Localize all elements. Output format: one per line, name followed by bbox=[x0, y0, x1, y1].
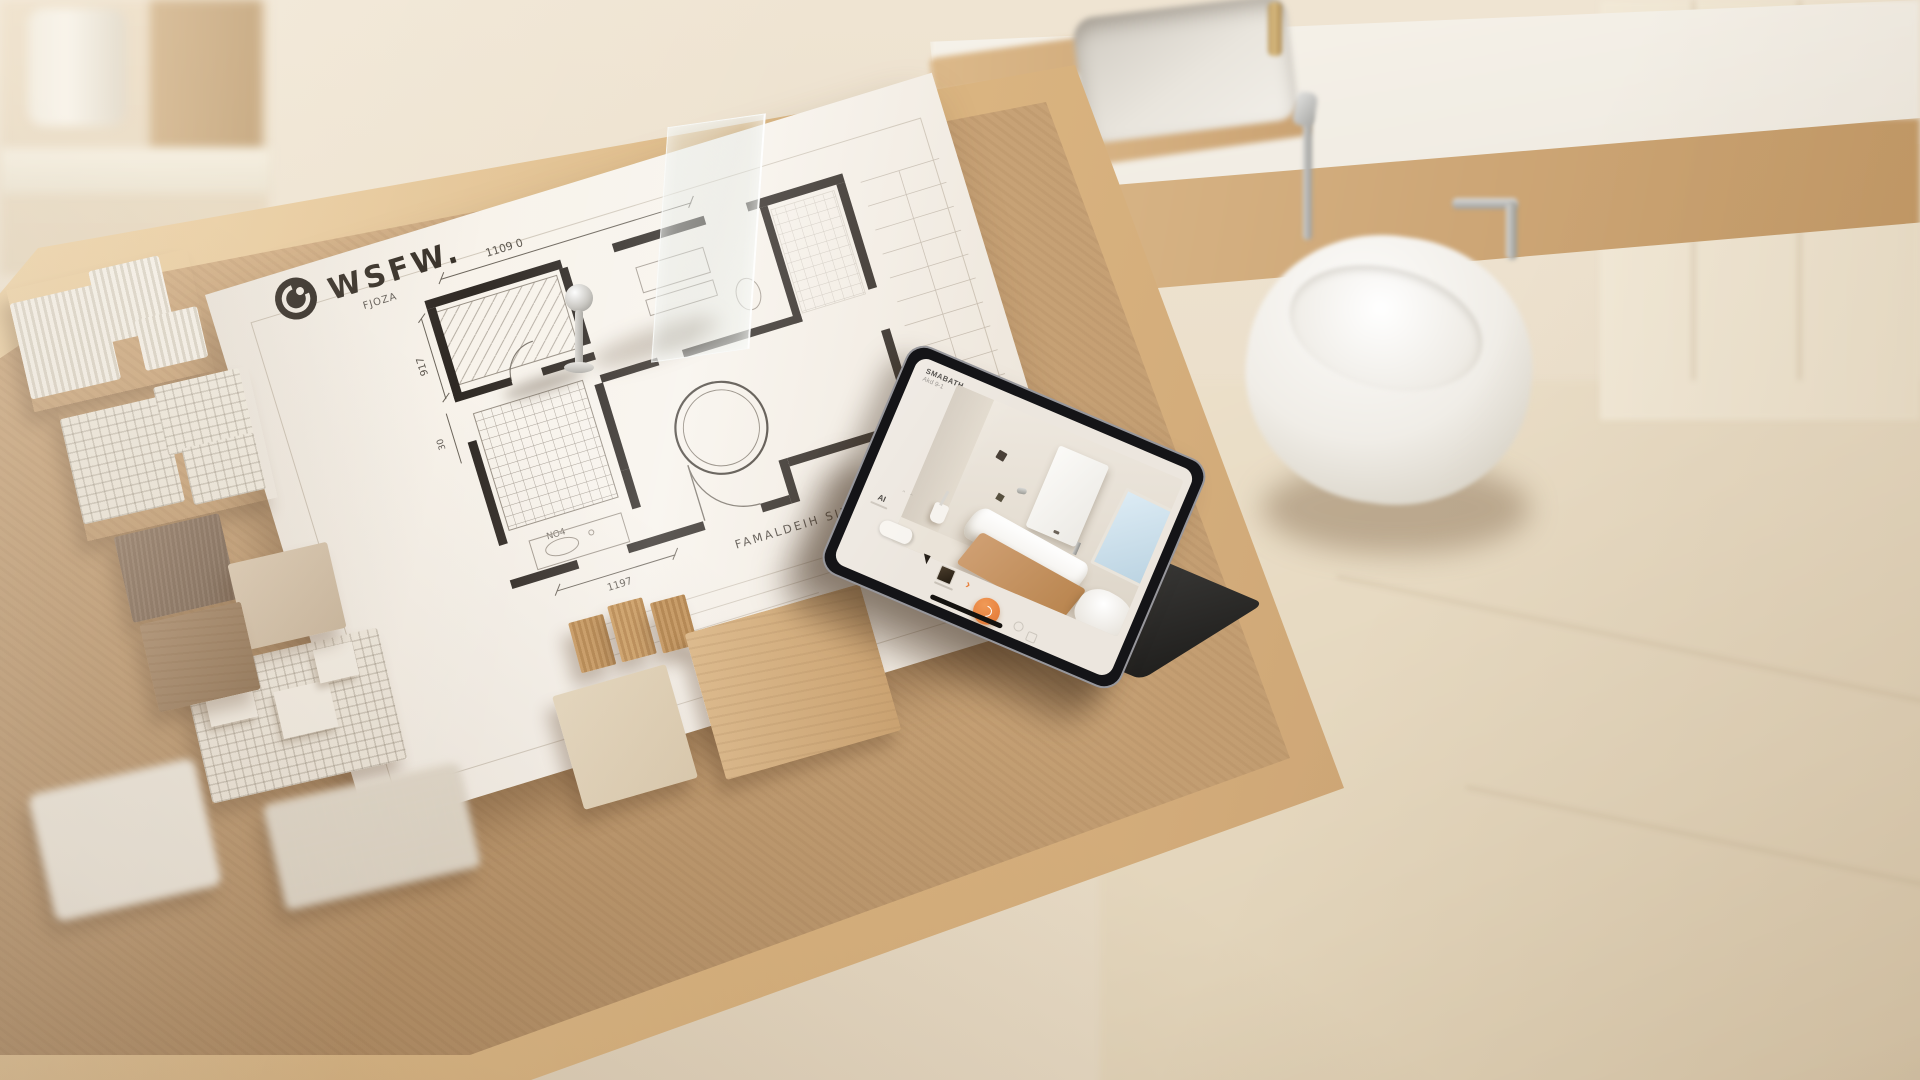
app-subtitle: Akd 9-1 bbox=[921, 376, 961, 398]
render-brush-cup bbox=[928, 501, 950, 525]
thumb-label-bar bbox=[934, 581, 953, 591]
grid-tool-icon[interactable] bbox=[1025, 631, 1038, 644]
ai-sparkle-icon: AI bbox=[870, 490, 894, 507]
material-thumb-button[interactable] bbox=[934, 565, 964, 593]
figure-head bbox=[565, 284, 593, 312]
ai-button-label-bar bbox=[870, 501, 887, 510]
render-window bbox=[1090, 487, 1179, 588]
render-toilet bbox=[1067, 580, 1140, 637]
magic-render-button[interactable] bbox=[969, 594, 1004, 629]
dim-left-upper-label: 917 bbox=[415, 356, 431, 377]
render-faucet bbox=[1072, 542, 1081, 556]
render-sink-basin bbox=[959, 505, 1093, 596]
render-wall-switch bbox=[995, 493, 1005, 503]
wood-block bbox=[607, 597, 657, 662]
ai-assist-button[interactable]: AI bbox=[868, 490, 893, 511]
gold-faucet bbox=[1268, 2, 1282, 56]
figure-stem bbox=[575, 310, 583, 366]
wall-faucet-spout bbox=[1506, 202, 1517, 260]
render-towel-hook bbox=[1016, 487, 1027, 495]
render-vanity-wood bbox=[956, 532, 1087, 622]
material-thumbnail bbox=[935, 565, 956, 586]
secondary-tool-icon[interactable] bbox=[1012, 620, 1025, 633]
chevron-right-icon[interactable]: › bbox=[963, 576, 973, 592]
cursor-arrow-icon[interactable] bbox=[924, 552, 932, 564]
shelf-wood-column bbox=[150, 0, 262, 152]
render-niche-wall bbox=[891, 384, 994, 556]
dim-bottom-label: 1197 bbox=[606, 576, 634, 594]
spray-hose bbox=[1303, 112, 1312, 240]
shelf-ledge bbox=[0, 148, 272, 194]
render-brush-handle bbox=[939, 491, 949, 506]
pill-button[interactable] bbox=[877, 518, 916, 547]
magic-brush-icon bbox=[979, 604, 994, 619]
plan-note-upper: FJOZA bbox=[362, 291, 399, 312]
shower-column-figure bbox=[556, 284, 602, 396]
render-mirror-cabinet bbox=[1025, 445, 1109, 547]
render-cabinet-handle bbox=[1053, 530, 1060, 535]
render-wall-control bbox=[995, 450, 1007, 462]
plan-note-mid: NO4 bbox=[545, 527, 567, 542]
blueprint-logo-icon bbox=[270, 272, 322, 324]
shelf-canister bbox=[28, 8, 126, 126]
app-header: SMABATH Akd 9-1 bbox=[921, 366, 965, 397]
bathroom-design-scene: WSFW. 1109 0 917 30 1197 FJOZA NO4 FAMAL… bbox=[0, 0, 1920, 1080]
caret-marks: ⌃ ⌃ bbox=[899, 489, 914, 501]
dim-left-lower-label: 30 bbox=[435, 437, 448, 451]
figure-base bbox=[564, 362, 594, 373]
app-title: SMABATH bbox=[924, 366, 965, 390]
dim-top-label: 1109 0 bbox=[484, 236, 525, 260]
glass-screen-model bbox=[651, 113, 766, 362]
